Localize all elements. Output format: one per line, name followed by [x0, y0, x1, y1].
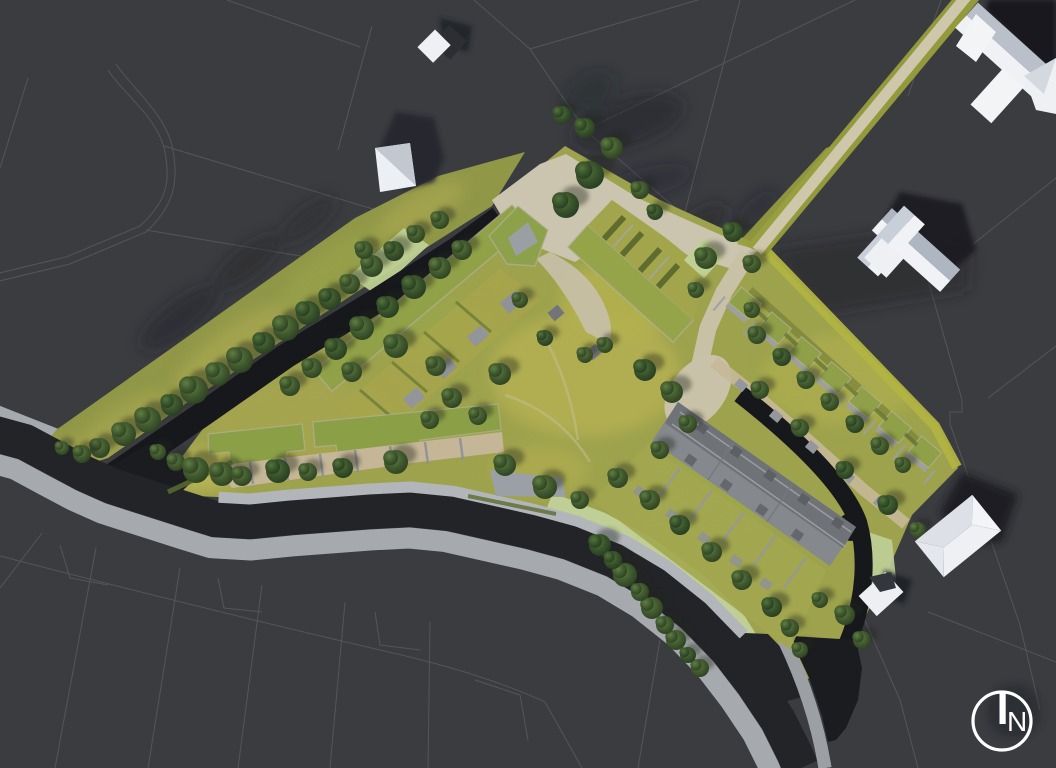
svg-text:N: N [1007, 706, 1027, 737]
